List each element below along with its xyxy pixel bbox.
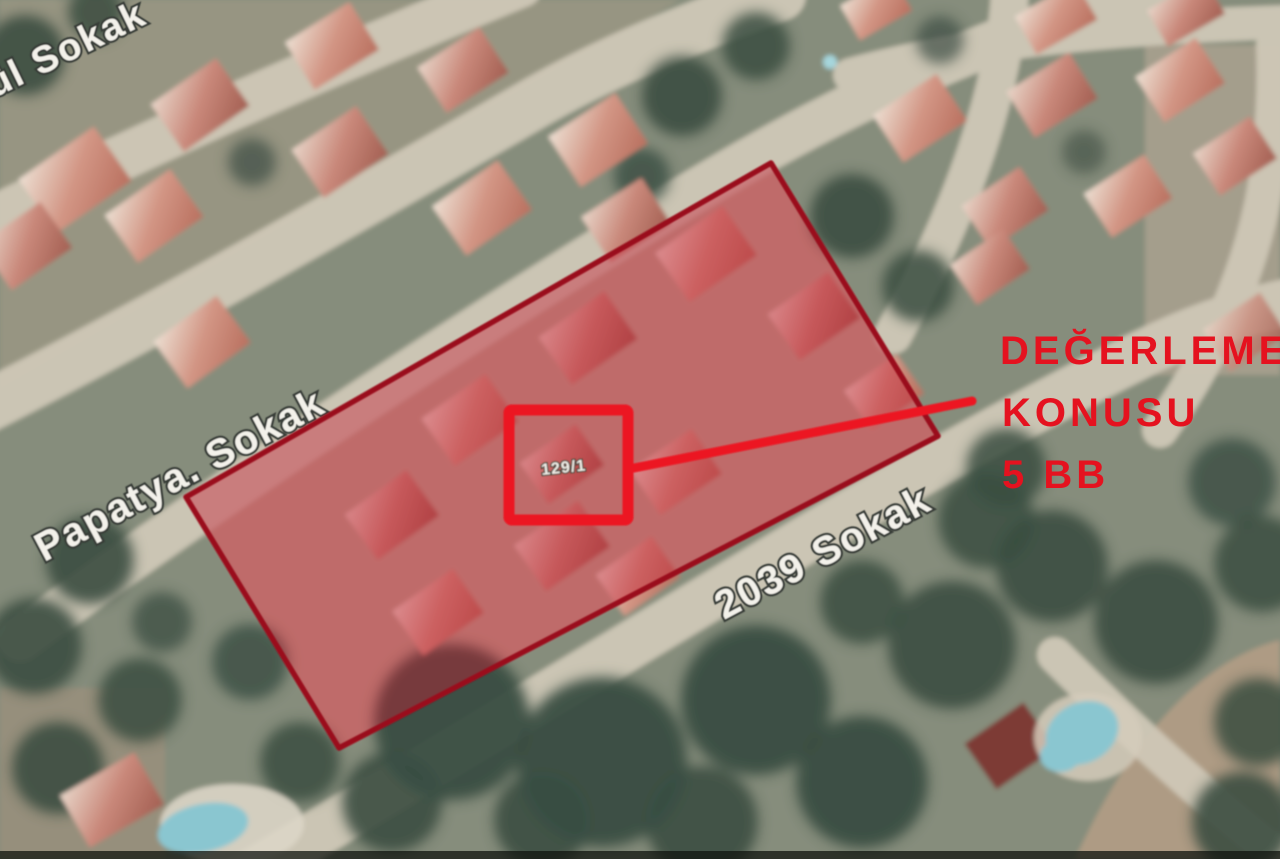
annotation-line-2: KONUSU [1002,391,1199,435]
annotation-line-3: 5 BB [1002,453,1109,497]
swimming-pool [1040,740,1080,772]
map-viewport: ül Sokak Papatya. Sokak 2039 Sokak 129/1… [0,0,1280,859]
satellite-map: ül Sokak Papatya. Sokak 2039 Sokak 129/1… [0,0,1280,859]
bottom-letterbox-bar [0,851,1280,859]
swimming-pool [823,55,837,69]
annotation-line-1: DEĞERLEME [1000,327,1280,373]
